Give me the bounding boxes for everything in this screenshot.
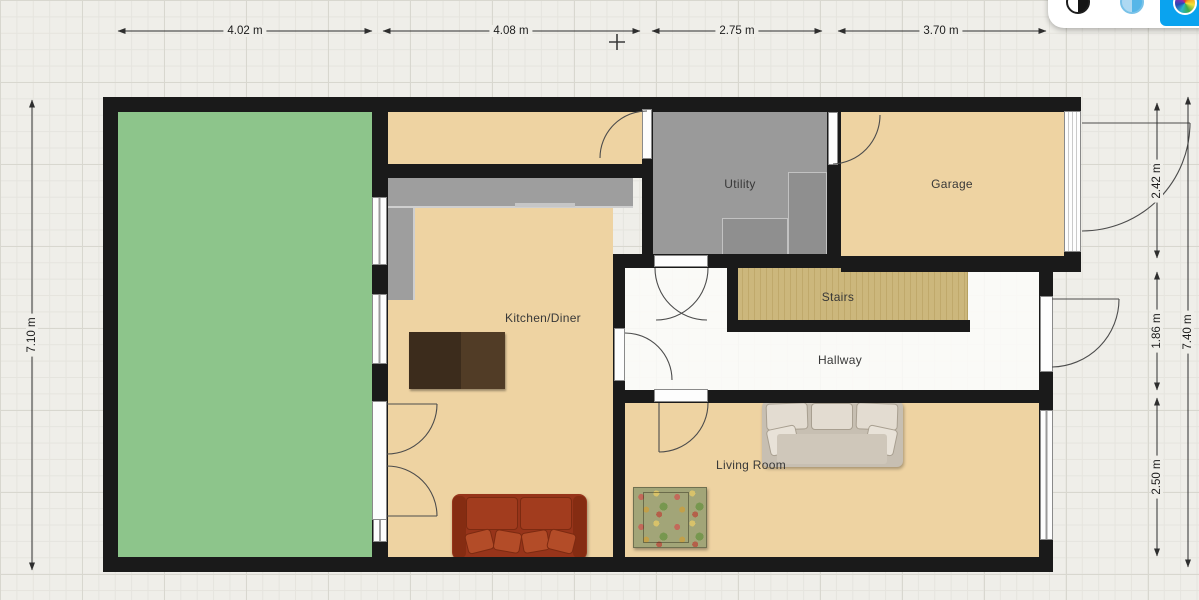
dim-right-2: 1.86 m — [1151, 309, 1163, 352]
wall-outer-bottom[interactable] — [103, 557, 1053, 572]
sofa-cushion — [466, 497, 518, 530]
window-garden-kitchen-3[interactable] — [373, 519, 387, 542]
window-garden-kitchen-2[interactable] — [372, 294, 387, 364]
dim-top-4: 3.70 m — [919, 25, 962, 37]
garden-area[interactable] — [118, 112, 372, 557]
room-label-kitchen: Kitchen/Diner — [505, 311, 581, 325]
kitchen-top-strip[interactable] — [388, 112, 642, 164]
armchair-cushion — [643, 492, 689, 543]
utility-counter-b[interactable] — [788, 172, 827, 256]
door-hallway-exterior[interactable] — [1040, 296, 1053, 372]
wall-hallway-top[interactable] — [613, 254, 841, 268]
sofa-pillow — [520, 529, 550, 554]
garage-door[interactable] — [1064, 111, 1081, 252]
room-label-stairs: Stairs — [822, 290, 854, 304]
center-cross-marker — [609, 34, 625, 50]
dim-right-4: 7.40 m — [1182, 310, 1194, 353]
wall-outer-left[interactable] — [103, 97, 118, 572]
room-label-utility: Utility — [724, 177, 755, 191]
wall-garage-bottom[interactable] — [841, 256, 1081, 272]
kitchen-counter-top[interactable] — [388, 178, 633, 208]
sofa-pillow — [464, 528, 495, 555]
wall-stairs-bottom[interactable] — [727, 320, 970, 332]
floor-plan-canvas[interactable]: Utility Garage Kitchen/Diner Stairs Hall… — [0, 0, 1199, 600]
sofa-arm — [573, 496, 586, 558]
window-living-right[interactable] — [1040, 410, 1053, 540]
dim-top-2: 4.08 m — [489, 25, 532, 37]
room-label-living: Living Room — [716, 458, 786, 472]
room-label-hallway: Hallway — [818, 353, 862, 367]
sofa-back-cushion — [811, 403, 853, 430]
sofa-cushion — [520, 497, 572, 530]
sofa-arm — [453, 496, 466, 558]
red-sofa[interactable] — [452, 494, 587, 560]
utility-counter-a[interactable] — [722, 218, 788, 256]
counter-highlight — [515, 203, 575, 207]
door-hallway-living[interactable] — [654, 389, 708, 402]
dim-top-3: 2.75 m — [715, 25, 758, 37]
floral-armchair[interactable] — [633, 487, 707, 548]
dining-table[interactable] — [409, 332, 505, 389]
wall-outer-top[interactable] — [103, 97, 1081, 112]
dim-right-3: 2.50 m — [1151, 455, 1163, 498]
sofa-seat — [777, 434, 887, 464]
french-doors-garden[interactable] — [372, 401, 387, 520]
sofa-pillow — [492, 529, 522, 554]
dim-right-1: 2.42 m — [1151, 159, 1163, 202]
door-kitchen-utility[interactable] — [642, 109, 652, 159]
door-utility-hallway[interactable] — [654, 255, 708, 267]
room-label-garage: Garage — [931, 177, 973, 191]
wall-kitchen-living[interactable] — [613, 254, 625, 572]
door-utility-garage[interactable] — [828, 112, 838, 165]
dim-left-1: 7.10 m — [26, 313, 38, 356]
wall-kitchen-inner-top[interactable] — [386, 164, 653, 178]
kitchen-counter-side[interactable] — [388, 208, 415, 300]
door-kitchen-hallway[interactable] — [614, 328, 625, 381]
window-garden-kitchen-1[interactable] — [372, 197, 387, 265]
dim-top-1: 4.02 m — [223, 25, 266, 37]
